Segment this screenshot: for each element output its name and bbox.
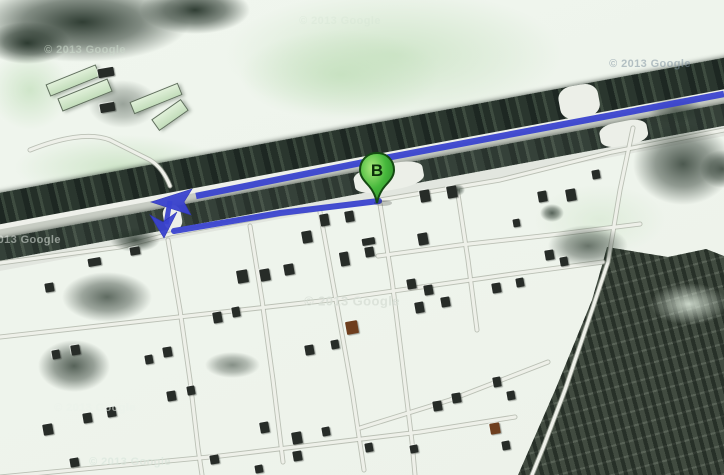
route-polyline-to-destination (174, 201, 379, 231)
marker-label: B (371, 161, 383, 180)
route-polyline-inbound (196, 94, 724, 196)
satellite-map-canvas[interactable]: B © 2013 Google © 2013 Google © 2013 Goo… (0, 0, 724, 475)
route-arrow-down (150, 212, 177, 238)
marker-b-pin[interactable]: B (357, 150, 397, 208)
route-overlay (0, 0, 724, 475)
